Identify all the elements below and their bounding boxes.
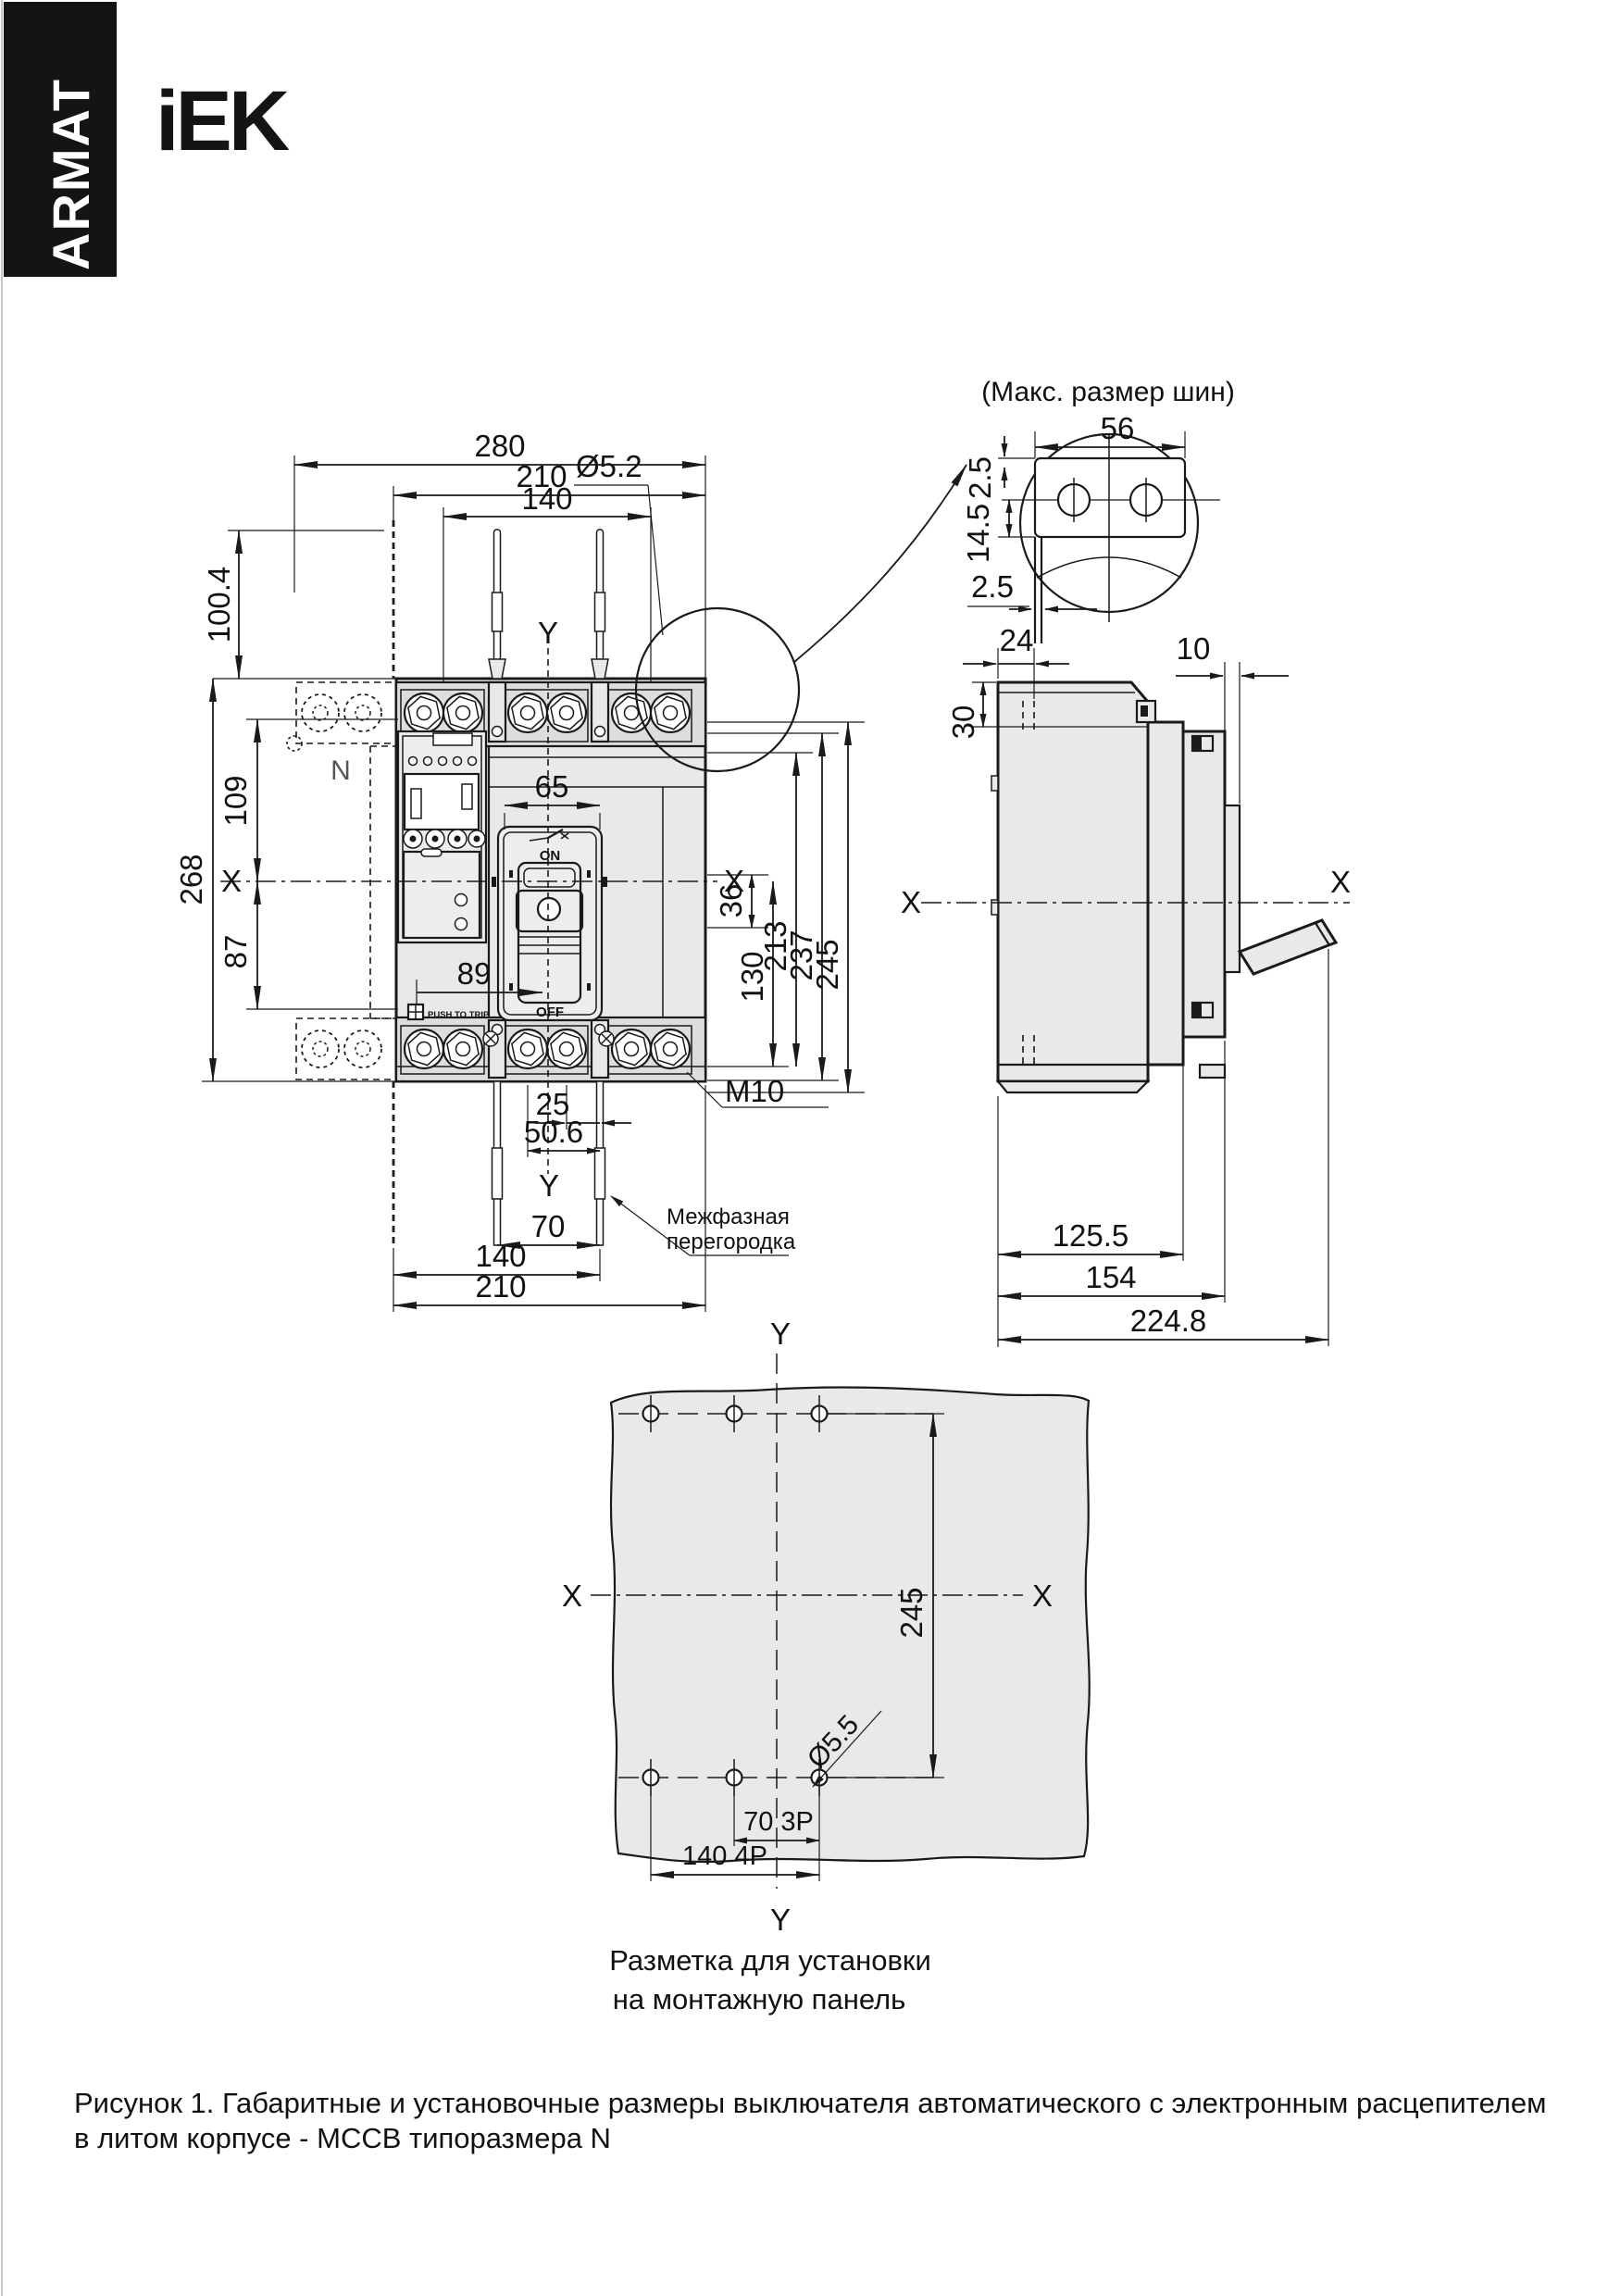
interphase-label-2: перегородка xyxy=(667,1229,796,1254)
figure-caption: Рисунок 1. Габаритные и установочные раз… xyxy=(74,2087,1546,2154)
mount-caption-2: на монтажную панель xyxy=(613,1983,906,2015)
svg-text:24: 24 xyxy=(1000,623,1034,657)
interphase-barriers-top xyxy=(393,520,608,679)
dim-2-5-top: 2.5 xyxy=(963,436,1035,499)
svg-text:125.5: 125.5 xyxy=(1053,1218,1129,1253)
svg-text:2.5: 2.5 xyxy=(971,569,1014,604)
svg-text:65: 65 xyxy=(535,769,569,804)
front-y-bottom-label: Y xyxy=(539,1168,559,1203)
detail-title: (Макс. размер шин) xyxy=(981,377,1235,407)
catalog-page: ARMAT iEK N xyxy=(0,0,1621,2296)
side-x-right-label: X xyxy=(1330,865,1351,899)
side-front-housing xyxy=(1183,731,1225,1037)
svg-text:210: 210 xyxy=(475,1269,526,1304)
svg-text:30: 30 xyxy=(946,705,980,740)
mount-x-right-label: X xyxy=(1032,1578,1053,1613)
m10-label: M10 xyxy=(725,1074,784,1108)
figure-caption-line2: в литом корпусе - MCCB типоразмера N xyxy=(74,2122,611,2154)
mount-caption-1: Разметка для установки xyxy=(609,1944,931,1977)
front-x-left-label: X xyxy=(221,864,242,898)
svg-text:154: 154 xyxy=(1085,1260,1136,1294)
svg-text:245: 245 xyxy=(894,1587,929,1638)
brand-banner: ARMAT xyxy=(4,2,117,277)
m10-callout: M10 xyxy=(687,1072,829,1108)
dia-5-2-label: Ø5.2 xyxy=(576,449,642,483)
svg-text:268: 268 xyxy=(174,854,208,905)
side-bezel-plate xyxy=(1225,805,1240,972)
figure-caption-line1: Рисунок 1. Габаритные и установочные раз… xyxy=(74,2087,1546,2119)
svg-text:280: 280 xyxy=(474,429,525,463)
svg-text:56: 56 xyxy=(1101,411,1135,445)
side-mid-block xyxy=(1148,722,1183,1065)
svg-text:2.5: 2.5 xyxy=(963,456,997,499)
trip-unit-display xyxy=(405,774,479,830)
brand-vertical-text: ARMAT xyxy=(42,78,100,270)
trip-unit-notch xyxy=(433,733,472,745)
dim-2-5-bottom: 2.5 xyxy=(967,569,1097,609)
svg-text:10: 10 xyxy=(1177,631,1211,666)
interphase-callout: Межфазная перегородка xyxy=(611,1196,796,1255)
mount-y-top-label: Y xyxy=(770,1316,791,1351)
svg-text:245: 245 xyxy=(810,939,844,990)
on-label: ON xyxy=(540,848,561,864)
svg-text:14.5: 14.5 xyxy=(961,504,995,563)
n-pole-label: N xyxy=(330,755,351,786)
dim-140-top: 140 xyxy=(443,481,651,682)
interphase-barriers-bottom xyxy=(393,1081,605,1248)
iek-logo: iEK xyxy=(156,74,290,168)
toggle-assembly: ON OFF xyxy=(492,827,607,1020)
dim-87: 87 xyxy=(218,881,398,1009)
mount-y-bottom-label: Y xyxy=(770,1903,791,1937)
side-x-left-label: X xyxy=(901,885,921,919)
svg-text:140: 140 xyxy=(475,1239,526,1273)
dim-14-5: 14.5 xyxy=(961,500,1035,563)
svg-text:140: 140 xyxy=(521,481,572,516)
detail-leader-arrow xyxy=(794,465,966,662)
dim-100-4: 100.4 xyxy=(202,530,396,679)
mount-x-left-label: X xyxy=(562,1578,582,1613)
mounting-panel xyxy=(611,1387,1090,1862)
side-view: X X 24 30 10 125.5 154 224.8 xyxy=(901,623,1351,1347)
off-label: OFF xyxy=(536,1004,564,1020)
svg-text:140 4P: 140 4P xyxy=(682,1841,767,1871)
svg-text:87: 87 xyxy=(218,935,253,969)
mounting-panel-view: X X Y Y 245 Ø5.5 70 3P 140 4P Разметка д… xyxy=(562,1316,1090,2015)
technical-drawing: ARMAT iEK N xyxy=(0,0,1621,2296)
svg-text:89: 89 xyxy=(457,956,492,991)
svg-text:50.6: 50.6 xyxy=(524,1115,583,1149)
side-base-lip xyxy=(998,1081,1148,1092)
interphase-label-1: Межфазная xyxy=(667,1204,790,1229)
svg-text:36: 36 xyxy=(714,884,748,918)
dim-268: 268 xyxy=(174,679,396,1081)
svg-text:224.8: 224.8 xyxy=(1130,1304,1207,1338)
side-toggle-handle xyxy=(1240,920,1336,974)
svg-text:100.4: 100.4 xyxy=(202,567,236,643)
side-back-block xyxy=(998,682,1148,1081)
busbar-detail-view: (Макс. размер шин) 56 2.5 14.5 2.5 xyxy=(961,377,1235,643)
svg-text:70 3P: 70 3P xyxy=(743,1807,814,1837)
push-to-trip-label: PUSH TO TRIP xyxy=(428,1010,490,1020)
svg-text:70: 70 xyxy=(531,1209,566,1243)
svg-text:109: 109 xyxy=(218,775,253,826)
trip-unit xyxy=(398,731,486,942)
dia-5-2-callout: Ø5.2 xyxy=(574,449,663,635)
front-view: N xyxy=(174,429,966,1312)
front-y-top-label: Y xyxy=(538,616,558,650)
